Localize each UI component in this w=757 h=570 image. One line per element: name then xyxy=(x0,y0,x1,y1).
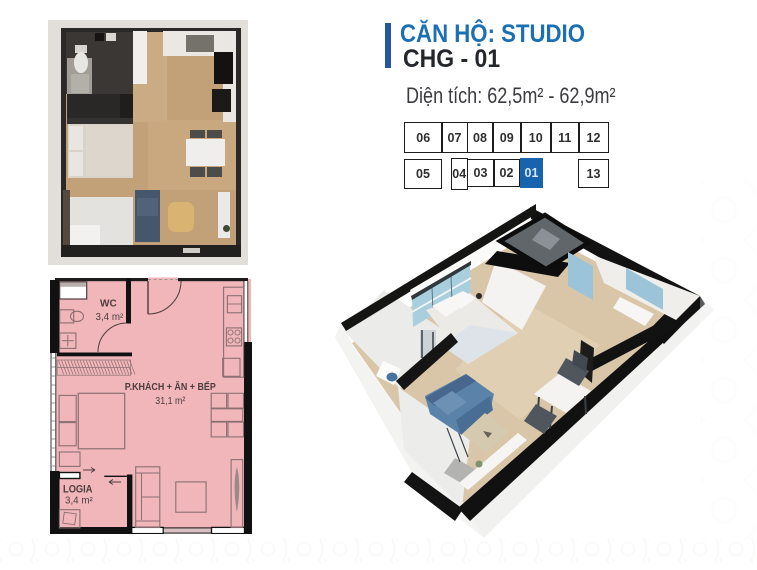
svg-text:3,4 m²: 3,4 m² xyxy=(96,312,125,323)
svg-text:3,4 m²: 3,4 m² xyxy=(65,496,94,507)
svg-text:WC: WC xyxy=(100,299,117,310)
svg-text:P.KHÁCH + ĂN + BẾP: P.KHÁCH + ĂN + BẾP xyxy=(125,380,216,393)
svg-text:LOGIA: LOGIA xyxy=(63,484,93,496)
svg-text:31,1 m²: 31,1 m² xyxy=(155,396,186,407)
